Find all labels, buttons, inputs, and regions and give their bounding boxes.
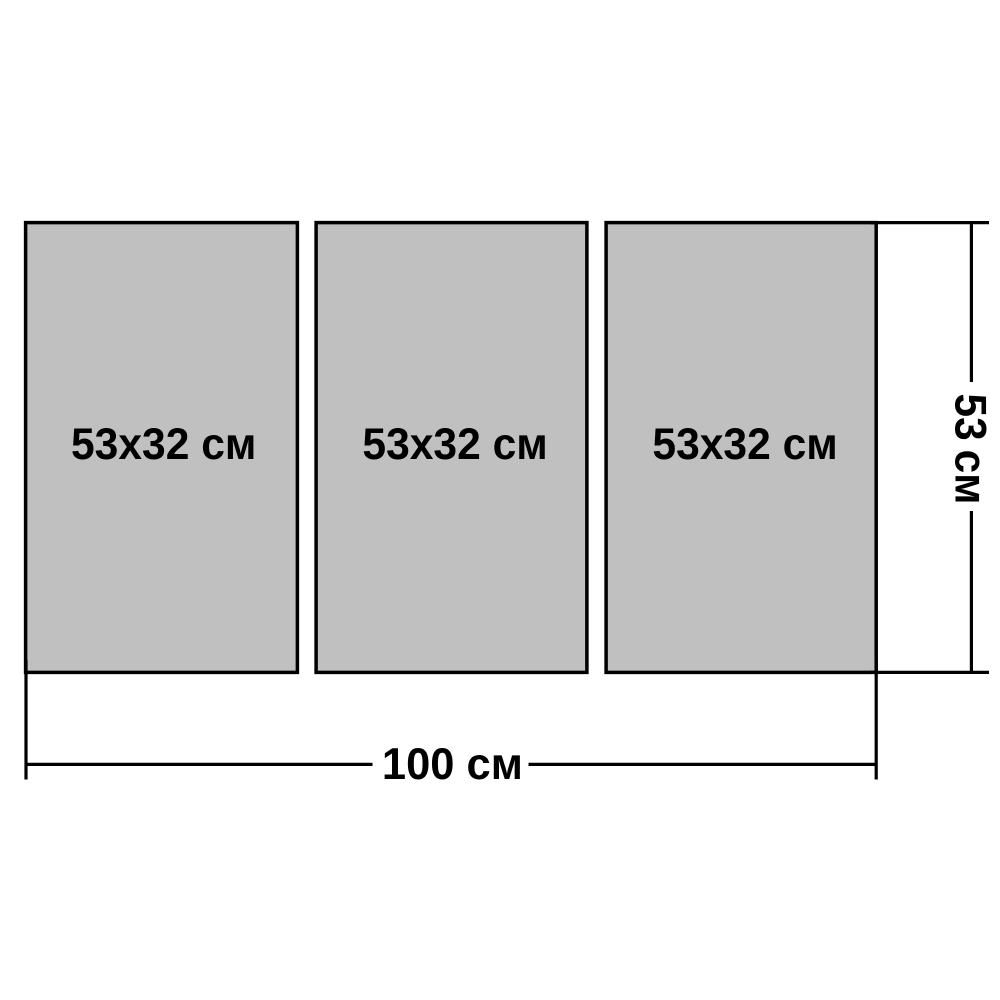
svg-text:100 см: 100 см [382,740,523,790]
svg-text:53x32 см: 53x32 см [362,420,547,469]
svg-text:53x32 см: 53x32 см [652,420,837,469]
svg-text:53x32 см: 53x32 см [71,420,256,469]
svg-text:53 см: 53 см [945,394,994,505]
